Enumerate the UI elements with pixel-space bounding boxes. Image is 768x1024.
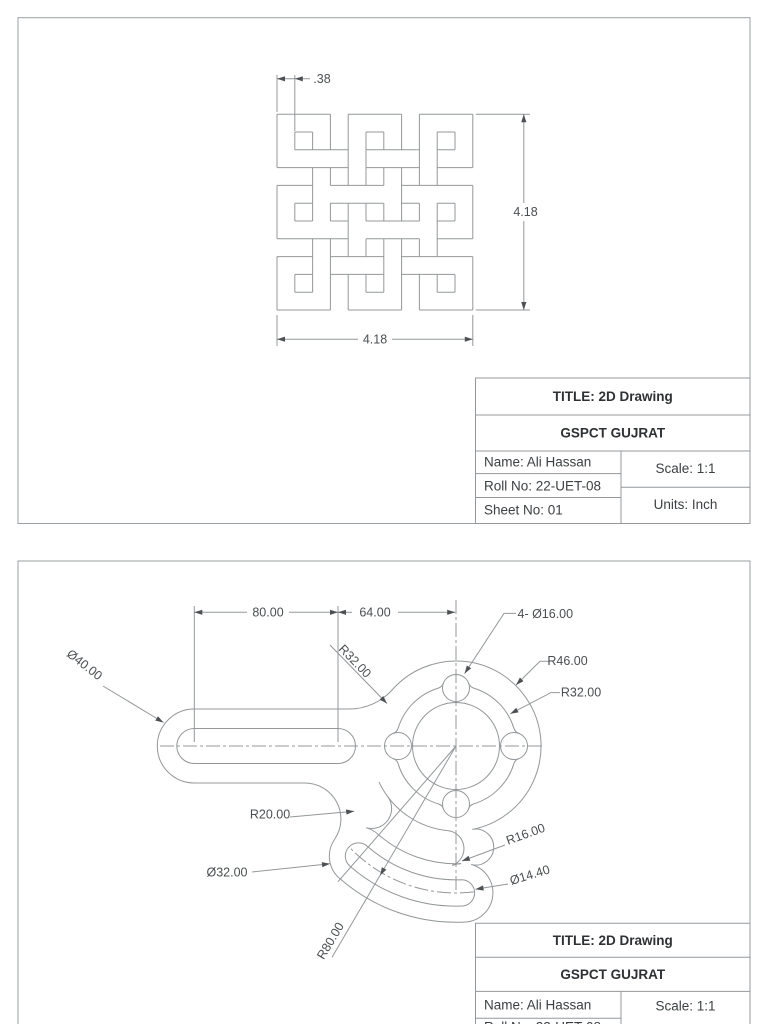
svg-text:Scale: 1:1: Scale: 1:1 bbox=[655, 999, 715, 1014]
svg-text:Ø14.40: Ø14.40 bbox=[508, 862, 551, 887]
svg-text:Ø32.00: Ø32.00 bbox=[206, 866, 247, 880]
svg-text:GSPCT GUJRAT: GSPCT GUJRAT bbox=[560, 967, 666, 982]
svg-text:Units: Inch: Units: Inch bbox=[654, 497, 718, 512]
svg-text:4- Ø16.00: 4- Ø16.00 bbox=[518, 607, 574, 621]
svg-text:R32.00: R32.00 bbox=[336, 642, 374, 681]
svg-text:Sheet No: 01: Sheet No: 01 bbox=[484, 503, 563, 518]
svg-text:4.18: 4.18 bbox=[513, 205, 537, 219]
svg-text:64.00: 64.00 bbox=[359, 606, 390, 620]
svg-text:Scale: 1:1: Scale: 1:1 bbox=[655, 461, 715, 476]
svg-text:Roll No: 22-UET-08: Roll No: 22-UET-08 bbox=[484, 479, 601, 494]
svg-text:Name: Ali Hassan: Name: Ali Hassan bbox=[484, 998, 591, 1013]
svg-text:80.00: 80.00 bbox=[252, 606, 283, 620]
svg-text:R16.00: R16.00 bbox=[504, 821, 547, 848]
svg-text:GSPCT GUJRAT: GSPCT GUJRAT bbox=[560, 426, 666, 441]
svg-text:R32.00: R32.00 bbox=[561, 686, 601, 700]
svg-text:4.18: 4.18 bbox=[363, 332, 387, 346]
svg-text:TITLE: 2D Drawing: TITLE: 2D Drawing bbox=[553, 933, 673, 948]
svg-text:.38: .38 bbox=[313, 72, 330, 86]
svg-text:TITLE: 2D Drawing: TITLE: 2D Drawing bbox=[553, 389, 673, 404]
svg-text:R20.00: R20.00 bbox=[250, 808, 290, 822]
svg-text:Ø40.00: Ø40.00 bbox=[64, 647, 105, 683]
svg-text:Roll No: 22-UET-08: Roll No: 22-UET-08 bbox=[484, 1020, 601, 1024]
svg-text:R46.00: R46.00 bbox=[547, 654, 587, 668]
svg-text:Name: Ali Hassan: Name: Ali Hassan bbox=[484, 455, 591, 470]
